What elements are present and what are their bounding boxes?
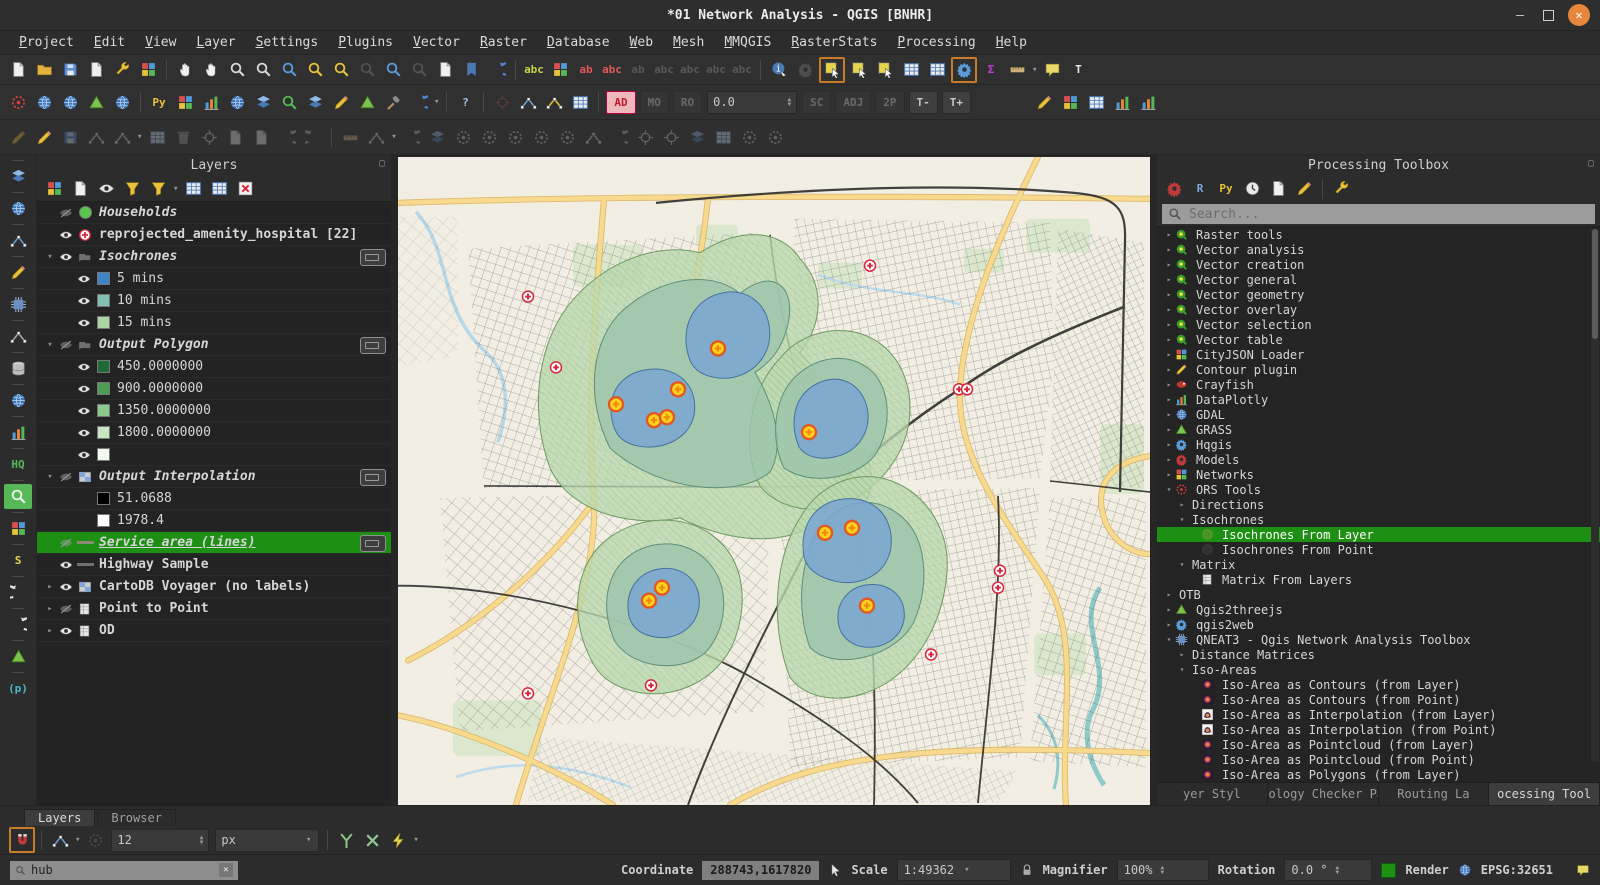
layer-row[interactable]: 1800.0000000 bbox=[37, 422, 391, 444]
shape-digitizing-icon[interactable] bbox=[110, 125, 134, 149]
enable-snapping-icon[interactable] bbox=[9, 827, 35, 853]
expander-icon[interactable]: ▸ bbox=[43, 626, 57, 636]
visibility-eye-icon[interactable] bbox=[75, 360, 93, 374]
layer-row[interactable]: ▸CartoDB Voyager (no labels) bbox=[37, 576, 391, 598]
menu-item-processing[interactable]: Processing bbox=[888, 33, 984, 52]
processing-tree-row[interactable]: ▸Crayfish bbox=[1157, 377, 1600, 392]
cad-sc-button[interactable]: SC bbox=[802, 91, 831, 114]
layer-row[interactable]: ▾Output Polygon bbox=[37, 334, 391, 356]
terrain-sun-icon[interactable] bbox=[355, 90, 379, 114]
dock-tab[interactable]: pology Checker Pa bbox=[1268, 783, 1379, 805]
visibility-eye-icon[interactable] bbox=[57, 558, 75, 572]
layer-row[interactable]: ▸Point to Point bbox=[37, 598, 391, 620]
add-point-feature-icon[interactable] bbox=[84, 125, 108, 149]
menu-item-mesh[interactable]: Mesh bbox=[664, 33, 713, 52]
processing-tree-row[interactable]: Iso-Area as Interpolation (from Point) bbox=[1157, 722, 1600, 737]
cad-mo-button[interactable]: MO bbox=[640, 91, 669, 114]
layer-labeling-icon[interactable]: abc bbox=[522, 58, 546, 82]
search-layers-icon[interactable] bbox=[277, 90, 301, 114]
processing-tree-row[interactable]: Isochrones From Layer bbox=[1157, 527, 1600, 542]
paste-features-icon[interactable] bbox=[249, 125, 273, 149]
merge-attributes-icon[interactable] bbox=[712, 125, 736, 149]
snapping-tolerance-spin[interactable]: 12▲▼ bbox=[111, 829, 209, 852]
processing-tree-row[interactable]: ▸qgis2web bbox=[1157, 617, 1600, 632]
processing-tree-row[interactable]: ▸Vector analysis bbox=[1157, 242, 1600, 257]
legend-filter-badge[interactable] bbox=[360, 469, 386, 486]
visibility-eye-icon[interactable] bbox=[57, 250, 75, 264]
visibility-eye-icon[interactable] bbox=[57, 580, 75, 594]
render-checkbox[interactable] bbox=[1381, 863, 1396, 878]
menu-item-layer[interactable]: Layer bbox=[187, 33, 244, 52]
delete-selected-icon[interactable] bbox=[171, 125, 195, 149]
menu-item-edit[interactable]: Edit bbox=[85, 33, 134, 52]
statistical-summary-icon[interactable] bbox=[925, 58, 949, 82]
expander-icon[interactable]: ▸ bbox=[1163, 425, 1175, 434]
profile-plot-icon[interactable] bbox=[1110, 90, 1134, 114]
visibility-eye-icon[interactable] bbox=[57, 536, 75, 550]
layer-row[interactable]: 1978.4 bbox=[37, 510, 391, 532]
cad-ad-button[interactable]: AD bbox=[606, 91, 635, 114]
reload-cw-icon[interactable] bbox=[4, 580, 32, 605]
contour-snake-icon[interactable] bbox=[1032, 90, 1056, 114]
osm-place-search-icon[interactable] bbox=[110, 90, 134, 114]
reshape-features-icon[interactable] bbox=[582, 125, 606, 149]
open-layer-styling-icon[interactable] bbox=[42, 178, 66, 199]
expander-icon[interactable]: ▸ bbox=[1176, 650, 1188, 659]
menu-item-settings[interactable]: Settings bbox=[247, 33, 328, 52]
processing-tree-row[interactable]: Iso-Area as Contours (from Layer) bbox=[1157, 677, 1600, 692]
expand-all-icon[interactable] bbox=[181, 178, 205, 199]
processing-tree-row[interactable]: ▸Vector general bbox=[1157, 272, 1600, 287]
processing-tree-row[interactable]: Iso-Area as Contours (from Point) bbox=[1157, 692, 1600, 707]
visibility-eye-icon[interactable] bbox=[57, 228, 75, 242]
layer-row[interactable]: 1350.0000000 bbox=[37, 400, 391, 422]
toggle-editing-icon[interactable] bbox=[32, 125, 56, 149]
processing-tree-row[interactable]: ▸OTB bbox=[1157, 587, 1600, 602]
run-feature-action-icon[interactable] bbox=[793, 58, 817, 82]
filter-by-expression-icon[interactable] bbox=[146, 178, 170, 199]
save-edits-icon[interactable] bbox=[58, 125, 82, 149]
visibility-eye-icon[interactable] bbox=[75, 316, 93, 330]
remove-layer-icon[interactable] bbox=[233, 178, 257, 199]
processing-tree-row[interactable]: ▸Raster tools bbox=[1157, 227, 1600, 242]
expander-icon[interactable]: ▾ bbox=[43, 340, 57, 350]
processing-tree-row[interactable]: ▸Distance Matrices bbox=[1157, 647, 1600, 662]
expander-icon[interactable]: ▸ bbox=[1163, 320, 1175, 329]
zoom-out-icon[interactable] bbox=[251, 58, 275, 82]
processing-tree-row[interactable]: Matrix From Layers bbox=[1157, 572, 1600, 587]
rotate-point-symbols-icon[interactable] bbox=[738, 125, 762, 149]
gdrive-plugin-icon[interactable] bbox=[4, 644, 32, 669]
processing-panel-dock-icon[interactable]: ▢ bbox=[1588, 158, 1594, 169]
maximize-button[interactable] bbox=[1543, 10, 1554, 21]
contour-plugin-icon[interactable] bbox=[329, 90, 353, 114]
history-icon[interactable] bbox=[1240, 178, 1264, 199]
current-edits-icon[interactable] bbox=[6, 125, 30, 149]
expander-icon[interactable]: ▸ bbox=[1163, 620, 1175, 629]
p-plugin-icon[interactable]: (p) bbox=[4, 676, 32, 701]
quickosm-feather-icon[interactable] bbox=[4, 260, 32, 285]
add-group-icon[interactable] bbox=[68, 178, 92, 199]
simplify-feature-icon[interactable] bbox=[426, 125, 450, 149]
merge-features-icon[interactable] bbox=[686, 125, 710, 149]
layer-row[interactable] bbox=[37, 444, 391, 466]
dropdown-caret-icon[interactable]: ▾ bbox=[434, 97, 439, 107]
expander-icon[interactable]: ▸ bbox=[1163, 365, 1175, 374]
delete-part-icon[interactable] bbox=[556, 125, 580, 149]
layer-row[interactable]: ▸OD bbox=[37, 620, 391, 642]
change-label-icon[interactable]: abc bbox=[678, 58, 702, 82]
zoom-in-icon[interactable] bbox=[225, 58, 249, 82]
vector-points-tool-icon[interactable] bbox=[4, 228, 32, 253]
dataplotly-icon[interactable] bbox=[199, 90, 223, 114]
visibility-eye-icon[interactable] bbox=[75, 448, 93, 462]
expander-icon[interactable]: ▸ bbox=[1163, 305, 1175, 314]
split-features-icon[interactable] bbox=[634, 125, 658, 149]
expander-icon[interactable]: ▸ bbox=[1163, 395, 1175, 404]
processing-tree-row[interactable]: ▸Vector creation bbox=[1157, 257, 1600, 272]
r-scripts-icon[interactable]: R bbox=[1188, 178, 1212, 199]
redo-edits-icon[interactable] bbox=[301, 125, 325, 149]
azimuth-distance-icon[interactable] bbox=[516, 90, 540, 114]
select-by-expression-icon[interactable] bbox=[847, 58, 871, 82]
results-viewer-icon[interactable] bbox=[1266, 178, 1290, 199]
processing-search-input[interactable]: Search... bbox=[1162, 204, 1595, 224]
geometry-checker-icon[interactable] bbox=[4, 324, 32, 349]
expander-icon[interactable]: ▾ bbox=[1163, 635, 1175, 644]
expander-icon[interactable]: ▸ bbox=[1163, 590, 1175, 599]
scrollbar-thumb[interactable] bbox=[1592, 229, 1598, 339]
dock-tab[interactable]: ocessing Tool bbox=[1489, 783, 1600, 805]
advanced-digitizing-panel-icon[interactable] bbox=[338, 125, 362, 149]
layout-manager-icon[interactable] bbox=[84, 58, 108, 82]
scrollbar[interactable] bbox=[1591, 229, 1599, 762]
processing-tree-row[interactable]: ▸Hqgis bbox=[1157, 437, 1600, 452]
geonode-browser-icon[interactable] bbox=[4, 196, 32, 221]
visibility-eye-icon[interactable] bbox=[57, 338, 75, 352]
phil-geoportal-icon[interactable] bbox=[4, 388, 32, 413]
map-tips-icon[interactable] bbox=[1040, 58, 1064, 82]
expander-icon[interactable]: ▸ bbox=[1163, 245, 1175, 254]
layer-row[interactable]: reprojected_amenity_hospital [22] bbox=[37, 224, 391, 246]
processing-tree-row[interactable]: Iso-Area as Interpolation (from Layer) bbox=[1157, 707, 1600, 722]
zoom-last-icon[interactable] bbox=[381, 58, 405, 82]
dropdown-caret-icon[interactable]: ▾ bbox=[413, 835, 418, 845]
locator-clear-icon[interactable]: ✕ bbox=[219, 863, 233, 877]
dock-tab[interactable]: Routing La bbox=[1379, 783, 1490, 805]
mmqgis-tools-icon[interactable] bbox=[58, 90, 82, 114]
hqgis-icon[interactable]: HQ bbox=[4, 452, 32, 477]
cad-ro-button[interactable]: RO bbox=[673, 91, 702, 114]
expander-icon[interactable]: ▾ bbox=[1176, 560, 1188, 569]
collapse-all-icon[interactable] bbox=[207, 178, 231, 199]
reload-ccw-icon[interactable] bbox=[4, 612, 32, 637]
expander-icon[interactable]: ▸ bbox=[1163, 350, 1175, 359]
processing-tree-row[interactable]: ▸Vector table bbox=[1157, 332, 1600, 347]
layer-row[interactable]: Households bbox=[37, 202, 391, 224]
snapping-mode-icon[interactable] bbox=[48, 828, 72, 852]
osm-globe-icon[interactable] bbox=[225, 90, 249, 114]
sld4raster-icon[interactable] bbox=[1058, 90, 1082, 114]
offset-curve-icon[interactable] bbox=[608, 125, 632, 149]
processing-tree-row[interactable]: ▸GDAL bbox=[1157, 407, 1600, 422]
mmqgis-grid-icon[interactable] bbox=[173, 90, 197, 114]
save-project-icon[interactable] bbox=[58, 58, 82, 82]
build-tool-icon[interactable] bbox=[381, 90, 405, 114]
menu-item-mmqgis[interactable]: MMQGIS bbox=[715, 33, 780, 52]
vertex-tool-icon[interactable] bbox=[542, 90, 566, 114]
expander-icon[interactable]: ▸ bbox=[1163, 410, 1175, 419]
processing-tree-row[interactable]: ▸Qgis2threejs bbox=[1157, 602, 1600, 617]
processing-tree-row[interactable]: ▸Contour plugin bbox=[1157, 362, 1600, 377]
dropdown-caret-icon[interactable]: ▾ bbox=[137, 132, 142, 142]
filter-legend-icon[interactable] bbox=[120, 178, 144, 199]
visibility-eye-icon[interactable] bbox=[57, 624, 75, 638]
qgis2threejs-icon[interactable] bbox=[84, 90, 108, 114]
processing-toolbox-btn-icon[interactable] bbox=[951, 57, 977, 83]
menu-item-help[interactable]: Help bbox=[987, 33, 1036, 52]
menu-item-vector[interactable]: Vector bbox=[404, 33, 469, 52]
identify-features-icon[interactable] bbox=[767, 58, 791, 82]
refresh-attribute-table-icon[interactable] bbox=[568, 90, 592, 114]
menu-item-raster[interactable]: Raster bbox=[471, 33, 536, 52]
map-canvas[interactable] bbox=[398, 155, 1149, 805]
new-project-icon[interactable] bbox=[6, 58, 30, 82]
visibility-eye-icon[interactable] bbox=[75, 272, 93, 286]
processing-tree-row[interactable]: ▾Isochrones bbox=[1157, 512, 1600, 527]
processing-tree-row[interactable]: ▸Vector selection bbox=[1157, 317, 1600, 332]
highlight-labels-icon[interactable]: abc bbox=[600, 58, 624, 82]
expander-icon[interactable]: ▸ bbox=[1163, 290, 1175, 299]
mmqgis-geocode-icon[interactable] bbox=[32, 90, 56, 114]
unpin-label-icon[interactable]: abc bbox=[730, 58, 754, 82]
visibility-eye-icon[interactable] bbox=[75, 294, 93, 308]
processing-tree-row[interactable]: ▸GRASS bbox=[1157, 422, 1600, 437]
data-source-manager-icon[interactable] bbox=[4, 164, 32, 189]
help-contents-icon[interactable]: ? bbox=[453, 90, 477, 114]
zoom-next-icon[interactable] bbox=[407, 58, 431, 82]
open-attribute-table-icon[interactable] bbox=[899, 58, 923, 82]
select-features-icon[interactable] bbox=[819, 57, 845, 83]
legend-filter-badge[interactable] bbox=[360, 337, 386, 354]
offset-point-symbols-icon[interactable] bbox=[764, 125, 788, 149]
layer-row[interactable]: Highway Sample bbox=[37, 554, 391, 576]
processing-tree-row[interactable]: Iso-Area as Pointcloud (from Layer) bbox=[1157, 737, 1600, 752]
processing-tree-row[interactable]: ▸CityJSON Loader bbox=[1157, 347, 1600, 362]
menu-item-plugins[interactable]: Plugins bbox=[329, 33, 402, 52]
visibility-eye-icon[interactable] bbox=[75, 382, 93, 396]
menu-item-database[interactable]: Database bbox=[538, 33, 619, 52]
expander-icon[interactable]: ▾ bbox=[1176, 515, 1188, 524]
layer-row[interactable]: ▾Output Interpolation bbox=[37, 466, 391, 488]
cad-t-minus-button[interactable]: T- bbox=[909, 91, 938, 114]
layer-row[interactable]: 5 mins bbox=[37, 268, 391, 290]
layer-row[interactable]: ▾Isochrones bbox=[37, 246, 391, 268]
python-scripts-icon[interactable]: Py bbox=[1214, 178, 1238, 199]
tracing-icon[interactable] bbox=[386, 828, 410, 852]
legend-filter-badge[interactable] bbox=[360, 249, 386, 266]
cad-angle-spin[interactable]: 0.0▲▼ bbox=[707, 91, 797, 114]
db-manager-icon[interactable] bbox=[4, 356, 32, 381]
cad-adj-button[interactable]: ADJ bbox=[835, 91, 871, 114]
layer-row[interactable]: 51.0688 bbox=[37, 488, 391, 510]
expander-icon[interactable]: ▸ bbox=[43, 582, 57, 592]
plugin-reloader-icon[interactable] bbox=[407, 90, 431, 114]
layer-row[interactable]: 15 mins bbox=[37, 312, 391, 334]
processing-tree-row[interactable]: ▸Vector overlay bbox=[1157, 302, 1600, 317]
sum-line-lengths-icon[interactable]: Σ bbox=[979, 58, 1003, 82]
zoom-full-extent-icon[interactable] bbox=[277, 58, 301, 82]
style-manager-icon[interactable] bbox=[136, 58, 160, 82]
layer-row[interactable]: Service area (lines) bbox=[37, 532, 391, 554]
modify-attributes-icon[interactable] bbox=[145, 125, 169, 149]
move-label-icon[interactable]: ab bbox=[626, 58, 650, 82]
layer-row[interactable]: 900.0000000 bbox=[37, 378, 391, 400]
models-menu-icon[interactable] bbox=[1162, 178, 1186, 199]
coordinate-input[interactable]: 288743,1617820 bbox=[702, 861, 819, 880]
expander-icon[interactable]: ▾ bbox=[43, 472, 57, 482]
menu-item-rasterstats[interactable]: RasterStats bbox=[782, 33, 886, 52]
visibility-eye-icon[interactable] bbox=[57, 206, 75, 220]
deselect-all-icon[interactable] bbox=[873, 58, 897, 82]
visibility-eye-icon[interactable] bbox=[75, 404, 93, 418]
menu-item-view[interactable]: View bbox=[136, 33, 185, 52]
menu-item-project[interactable]: Project bbox=[10, 33, 83, 52]
expander-icon[interactable]: ▸ bbox=[1163, 470, 1175, 479]
pan-map-icon[interactable] bbox=[173, 58, 197, 82]
processing-tree-row[interactable]: ▸Models bbox=[1157, 452, 1600, 467]
processing-tree-row[interactable]: Iso-Area as Pointcloud (from Point) bbox=[1157, 752, 1600, 767]
expander-icon[interactable]: ▸ bbox=[1163, 605, 1175, 614]
processing-tree-row[interactable]: ▸Directions bbox=[1157, 497, 1600, 512]
messages-icon[interactable] bbox=[1576, 863, 1590, 877]
layers-panel-dock-icon[interactable]: ▢ bbox=[379, 158, 385, 169]
attribute-table-add-icon[interactable] bbox=[1084, 90, 1108, 114]
dock-tab[interactable]: yer Styl bbox=[1157, 783, 1268, 805]
curved-label-icon[interactable]: abc bbox=[704, 58, 728, 82]
zoom-to-selection-icon[interactable] bbox=[303, 58, 327, 82]
ors-tools-icon[interactable] bbox=[6, 90, 30, 114]
osm-search-icon[interactable] bbox=[4, 484, 32, 509]
refresh-map-icon[interactable] bbox=[485, 58, 509, 82]
new-map-view-icon[interactable] bbox=[433, 58, 457, 82]
processing-tree-row[interactable]: ▸DataPlotly bbox=[1157, 392, 1600, 407]
locator-search-input[interactable]: hub ✕ bbox=[10, 861, 238, 880]
crayfish-icon[interactable] bbox=[251, 90, 275, 114]
processing-tree-row[interactable]: ▾ORS Tools bbox=[1157, 482, 1600, 497]
cad-2p-button[interactable]: 2P bbox=[875, 91, 904, 114]
topological-editing-icon[interactable] bbox=[334, 828, 358, 852]
python-console-icon[interactable]: Py bbox=[147, 90, 171, 114]
dropdown-caret-icon[interactable]: ▾ bbox=[173, 184, 178, 194]
dropdown-caret-icon[interactable]: ▾ bbox=[75, 835, 80, 845]
zoom-to-layer-icon[interactable] bbox=[329, 58, 353, 82]
chart-plugin-icon[interactable] bbox=[4, 420, 32, 445]
expander-icon[interactable]: ▸ bbox=[1163, 335, 1175, 344]
delete-ring-icon[interactable] bbox=[530, 125, 554, 149]
rotate-feature-icon[interactable] bbox=[400, 125, 424, 149]
dropdown-caret-icon[interactable]: ▾ bbox=[1032, 65, 1037, 75]
menu-item-web[interactable]: Web bbox=[621, 33, 662, 52]
self-snapping-icon[interactable] bbox=[83, 828, 107, 852]
cut-features-icon[interactable] bbox=[197, 125, 221, 149]
close-button[interactable]: ✕ bbox=[1568, 4, 1590, 26]
processing-tree-row[interactable]: ▾Iso-Areas bbox=[1157, 662, 1600, 677]
edit-features-in-place-icon[interactable] bbox=[1292, 178, 1316, 199]
legend-filter-badge[interactable] bbox=[360, 535, 386, 552]
spatial-bookmarks-icon[interactable] bbox=[459, 58, 483, 82]
layer-row[interactable]: 450.0000000 bbox=[37, 356, 391, 378]
expander-icon[interactable]: ▸ bbox=[1163, 380, 1175, 389]
visibility-eye-icon[interactable] bbox=[75, 426, 93, 440]
snap-intersection-icon[interactable] bbox=[360, 828, 384, 852]
expander-icon[interactable]: ▾ bbox=[1163, 485, 1175, 494]
tab-layers[interactable]: Layers bbox=[24, 809, 95, 826]
manage-map-themes-icon[interactable] bbox=[94, 178, 118, 199]
expander-icon[interactable]: ▸ bbox=[1163, 275, 1175, 284]
layer-row[interactable]: 10 mins bbox=[37, 290, 391, 312]
splitter-left[interactable] bbox=[391, 155, 398, 805]
measure-line-icon[interactable] bbox=[1005, 58, 1029, 82]
expander-icon[interactable]: ▸ bbox=[1163, 260, 1175, 269]
expander-icon[interactable]: ▸ bbox=[43, 604, 57, 614]
processing-tree-row[interactable]: ▾Matrix bbox=[1157, 557, 1600, 572]
add-part-icon[interactable] bbox=[478, 125, 502, 149]
fill-ring-icon[interactable] bbox=[504, 125, 528, 149]
expander-icon[interactable]: ▸ bbox=[1163, 230, 1175, 239]
copy-features-icon[interactable] bbox=[223, 125, 247, 149]
processing-tree-row[interactable]: ▸Vector geometry bbox=[1157, 287, 1600, 302]
cad-dock-icon[interactable] bbox=[490, 90, 514, 114]
processing-tree-row[interactable]: Isochrones From Point bbox=[1157, 542, 1600, 557]
scale-lock-icon[interactable] bbox=[1020, 863, 1034, 877]
text-annotation-icon[interactable]: T bbox=[1066, 58, 1090, 82]
pin-labels-icon[interactable]: ab bbox=[574, 58, 598, 82]
processing-tree-row[interactable]: ▾QNEAT3 - Qgis Network Analysis Toolbox bbox=[1157, 632, 1600, 647]
expander-icon[interactable]: ▸ bbox=[1163, 455, 1175, 464]
options-icon[interactable] bbox=[1329, 178, 1353, 199]
snapping-units-combo[interactable]: px▾ bbox=[215, 829, 319, 852]
expander-icon[interactable]: ▸ bbox=[1176, 500, 1188, 509]
splitter-right[interactable] bbox=[1149, 155, 1157, 805]
processing-tree-row[interactable]: ▸Networks bbox=[1157, 467, 1600, 482]
open-project-icon[interactable] bbox=[32, 58, 56, 82]
sampling-tool-icon[interactable]: S bbox=[4, 548, 32, 573]
layer-diagram-icon[interactable] bbox=[548, 58, 572, 82]
move-features-icon[interactable] bbox=[364, 125, 388, 149]
expander-icon[interactable]: ▸ bbox=[1163, 440, 1175, 449]
crs-value[interactable]: EPSG:32651 bbox=[1481, 863, 1553, 877]
pan-to-selection-icon[interactable] bbox=[199, 58, 223, 82]
tab-browser[interactable]: Browser bbox=[97, 809, 176, 826]
expander-icon[interactable]: ▾ bbox=[1176, 665, 1188, 674]
zoom-native-icon[interactable] bbox=[355, 58, 379, 82]
add-ring-icon[interactable] bbox=[452, 125, 476, 149]
processing-tree-row[interactable]: Iso-Area as Polygons (from Layer) bbox=[1157, 767, 1600, 782]
dropdown-caret-icon[interactable]: ▾ bbox=[391, 132, 396, 142]
visibility-eye-icon[interactable] bbox=[57, 602, 75, 616]
undo-edits-icon[interactable] bbox=[275, 125, 299, 149]
minimize-button[interactable]: – bbox=[1511, 8, 1529, 23]
rotate-label-icon[interactable]: abc bbox=[652, 58, 676, 82]
visibility-eye-icon[interactable] bbox=[57, 470, 75, 484]
expander-icon[interactable]: ▾ bbox=[43, 252, 57, 262]
raster-histogram-icon[interactable] bbox=[1136, 90, 1160, 114]
project-properties-icon[interactable] bbox=[110, 58, 134, 82]
split-parts-icon[interactable] bbox=[660, 125, 684, 149]
processing-module-icon[interactable] bbox=[4, 292, 32, 317]
cad-t-plus-button[interactable]: T+ bbox=[942, 91, 971, 114]
